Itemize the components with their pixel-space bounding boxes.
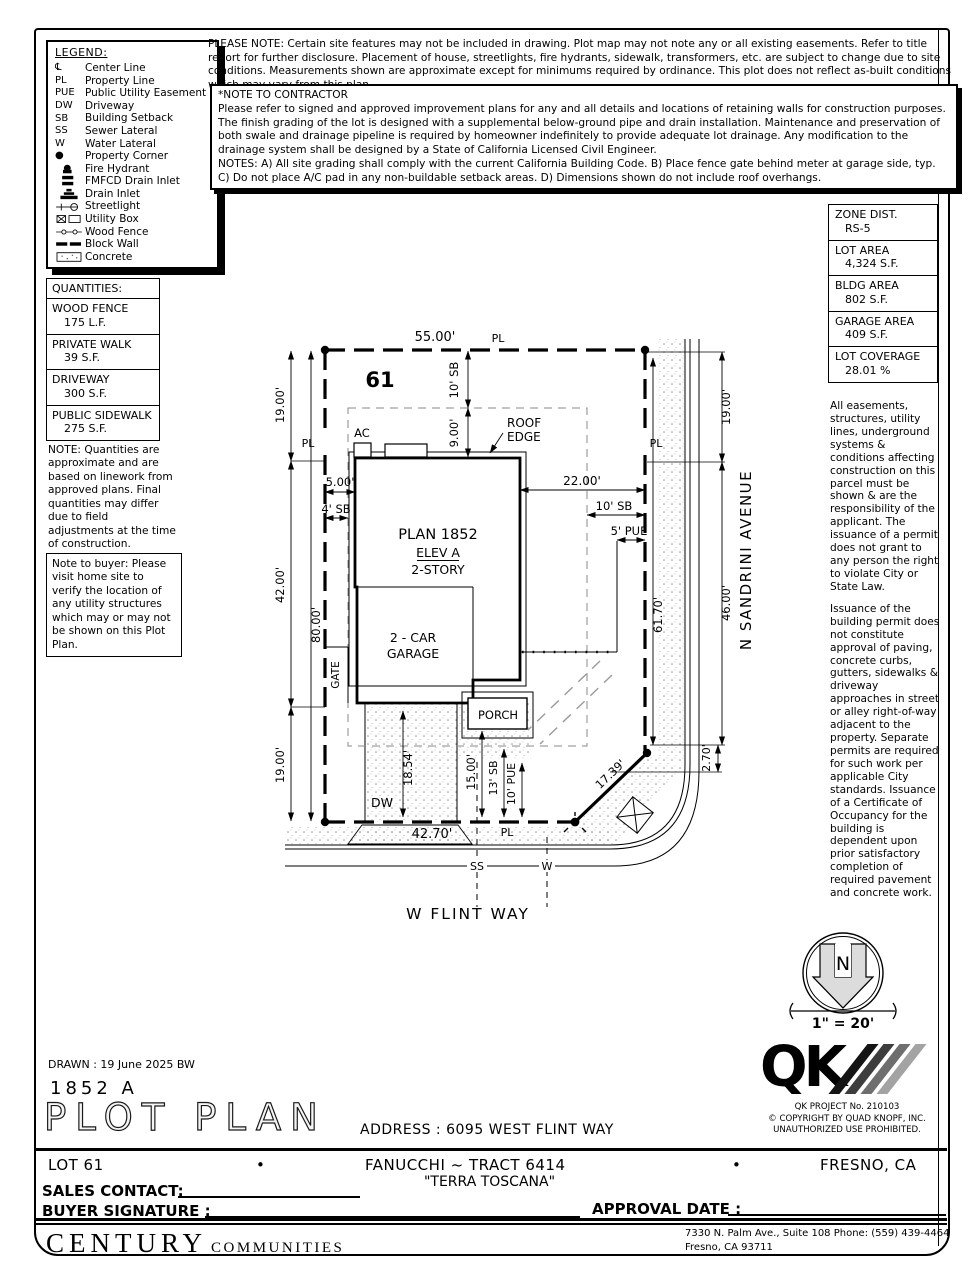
legend-item-fire-hydrant: Fire Hydrant — [55, 163, 213, 176]
bullet: • — [256, 1156, 265, 1174]
buyer-signature-field[interactable] — [205, 1198, 580, 1218]
dim-19-left-bottom: 19.00' — [273, 747, 287, 783]
north-label: N — [836, 953, 850, 975]
water-lateral-label: W — [542, 860, 553, 873]
divider — [35, 1218, 947, 1221]
builder-address: 7330 N. Palm Ave., Suite 108 Phone: (559… — [685, 1227, 949, 1254]
roof-edge-label-1: ROOF — [507, 416, 541, 430]
utility-box-icon — [55, 213, 85, 225]
bullet: • — [732, 1156, 741, 1174]
qk-logo-letters: QK — [760, 1040, 843, 1096]
porch-label: PORCH — [478, 708, 518, 722]
sales-contact-label: SALES CONTACT: — [42, 1182, 184, 1200]
pue-symbol: PUE — [55, 87, 85, 99]
table-row: GARAGE AREA409 S.F. — [829, 312, 937, 348]
legend-item-driveway: DW Driveway — [55, 100, 213, 113]
corner-setback-dash — [540, 675, 612, 744]
table-row: WOOD FENCE175 L.F. — [47, 299, 159, 335]
approval-date-label: APPROVAL DATE : — [592, 1200, 741, 1218]
dw-symbol: DW — [55, 100, 85, 112]
city-label: FRESNO, CA — [820, 1156, 916, 1174]
legend-item-water: W Water Lateral — [55, 137, 213, 150]
elevation-label: ELEV A — [416, 545, 460, 560]
dim-15: 15.00' — [464, 754, 478, 790]
drawn-by: DRAWN : 19 June 2025 BW — [48, 1058, 195, 1071]
pl-label-left: PL — [302, 437, 316, 450]
lot-number: 61 — [365, 368, 394, 392]
quantities-table: QUANTITIES: WOOD FENCE175 L.F. PRIVATE W… — [46, 278, 160, 441]
dim-22: 22.00' — [563, 474, 601, 488]
story-label: 2-STORY — [411, 562, 465, 577]
garage-label-2: GARAGE — [387, 646, 439, 661]
contractor-note-line1: Please refer to signed and approved impr… — [218, 103, 950, 117]
contractor-note-line2: The finish grading of the lot is designe… — [218, 117, 950, 158]
zoning-table: ZONE DIST.RS-5 LOT AREA4,324 S.F. BLDG A… — [828, 204, 938, 383]
quantities-title: QUANTITIES: — [47, 279, 159, 299]
site-plan-drawing: SS W PL PL PL PL — [270, 325, 840, 975]
builder-name: CENTURY — [46, 1228, 207, 1258]
dim-19-right: 19.00' — [719, 389, 733, 425]
legend-item-centerline: ℄ Center Line — [55, 62, 213, 75]
streetlight-icon — [55, 201, 85, 213]
house-outline — [355, 458, 520, 703]
property-corner — [321, 818, 329, 826]
pl-symbol: PL — [55, 75, 85, 87]
drain-inlet-icon — [55, 188, 85, 200]
legend-item-sewer: SS Sewer Lateral — [55, 125, 213, 138]
sb-symbol: SB — [55, 113, 85, 125]
fmfcd-drain-inlet-icon — [55, 175, 85, 187]
easements-paragraph-1: All easements, structures, utility lines… — [830, 400, 942, 594]
lot-label: LOT 61 — [48, 1156, 104, 1174]
ac-pad — [354, 443, 371, 457]
w-symbol: W — [55, 138, 85, 150]
table-row: LOT COVERAGE28.01 % — [829, 347, 937, 382]
sales-contact-field[interactable] — [178, 1178, 360, 1198]
dim-10sb-top: 10' SB — [447, 362, 461, 399]
qk-logo: QK — [752, 1040, 942, 1102]
contractor-note-box: *NOTE TO CONTRACTOR Please refer to sign… — [210, 84, 958, 190]
plot-plan-page: LEGEND: ℄ Center Line PL Property Line P… — [0, 0, 979, 1276]
dim-19-left-top: 19.00' — [273, 387, 287, 423]
qk-logo-block: QK QK PROJECT No. 210103 © COPYRIGHT BY … — [752, 1040, 942, 1137]
plan-label: PLAN 1852 — [398, 527, 477, 543]
easements-note: All easements, structures, utility lines… — [830, 400, 942, 909]
builder-logo: CENTURY COMMUNITIES — [46, 1228, 344, 1259]
property-corner — [643, 749, 651, 757]
legend-item-utility-box: Utility Box — [55, 213, 213, 226]
dim-9: 9.00' — [447, 419, 461, 448]
dim-42-70: 42.70' — [412, 827, 453, 842]
dim-46: 46.00' — [719, 585, 733, 621]
table-row: PRIVATE WALK39 S.F. — [47, 335, 159, 371]
table-row: PUBLIC SIDEWALK275 S.F. — [47, 406, 159, 441]
wood-fence-icon — [55, 226, 85, 238]
corner-setback-dash — [528, 661, 600, 730]
qk-project-number: QK PROJECT No. 210103 — [752, 1102, 942, 1114]
centerline-symbol: ℄ — [55, 62, 85, 74]
pl-label-bottom: PL — [501, 826, 515, 839]
quantities-note: NOTE: Quantities are approximate and are… — [48, 444, 176, 552]
garage-label-1: 2 - CAR — [390, 630, 437, 645]
dim-61-70: 61.70' — [651, 597, 665, 633]
legend-item-block-wall: Block Wall — [55, 238, 213, 251]
dim-5pue: 5' PUE — [611, 524, 648, 538]
table-row: DRIVEWAY300 S.F. — [47, 370, 159, 406]
legend-title: LEGEND: — [55, 47, 213, 60]
legend-item-wood-fence: Wood Fence — [55, 225, 213, 238]
pl-label-top: PL — [492, 332, 506, 345]
ss-symbol: SS — [55, 125, 85, 137]
driveway-label: DW — [371, 795, 393, 810]
legend-item-setback: SB Building Setback — [55, 112, 213, 125]
legend-box: LEGEND: ℄ Center Line PL Property Line P… — [46, 40, 219, 269]
property-corner — [321, 346, 329, 354]
site-address: ADDRESS : 6095 WEST FLINT WAY — [360, 1122, 614, 1138]
dim-4sb: 4' SB — [321, 502, 350, 516]
dim-10sb-right: 10' SB — [596, 499, 633, 513]
legend-item-property-line: PL Property Line — [55, 74, 213, 87]
dim-13sb: 13' SB — [487, 760, 500, 795]
gate-label: GATE — [330, 661, 342, 689]
property-corner — [641, 346, 649, 354]
equipment-pad — [385, 444, 427, 457]
qk-unauthorized: UNAUTHORIZED USE PROHIBITED. — [752, 1125, 942, 1137]
approval-date-field[interactable] — [728, 1196, 946, 1216]
dim-10pue: 10' PUE — [505, 763, 518, 805]
contractor-note-line3: NOTES: A) All site grading shall comply … — [218, 158, 950, 186]
dim-80: 80.00' — [309, 607, 323, 643]
legend-item-streetlight: Streetlight — [55, 200, 213, 213]
roof-edge-label-2: EDGE — [507, 430, 541, 444]
dim-2-70: 2.70' — [700, 744, 713, 772]
ac-label: AC — [354, 426, 370, 440]
dim-18-54: 18.54' — [401, 750, 415, 786]
legend-item-concrete: Concrete — [55, 251, 213, 264]
qk-copyright: © COPYRIGHT BY QUAD KNOPF, INC. — [752, 1114, 942, 1126]
tract-label: FANUCCHI ~ TRACT 6414 — [365, 1156, 566, 1174]
legend-item-drain-inlet: Drain Inlet — [55, 188, 213, 201]
table-row: BLDG AREA802 S.F. — [829, 276, 937, 312]
dim-42: 42.00' — [273, 567, 287, 603]
scale-label: 1" = 20' — [793, 1016, 893, 1032]
dim-55: 55.00' — [415, 330, 456, 345]
easements-paragraph-2: Issuance of the building permit does not… — [830, 603, 942, 900]
sheet-title: PLOT PLAN — [44, 1096, 327, 1139]
divider — [35, 1223, 947, 1225]
legend-item-fmfcd-inlet: FMFCD Drain Inlet — [55, 175, 213, 188]
block-wall-icon — [55, 238, 85, 250]
table-row: LOT AREA4,324 S.F. — [829, 241, 937, 277]
divider — [35, 1148, 947, 1151]
builder-subname: COMMUNITIES — [211, 1240, 344, 1256]
legend-item-pue: PUE Public Utility Easement — [55, 87, 213, 100]
dim-5: 5.00' — [326, 475, 355, 489]
property-corner-icon: ● — [55, 150, 85, 162]
legend-item-property-corner: ● Property Corner — [55, 150, 213, 163]
pl-label-right: PL — [650, 437, 664, 450]
table-row: ZONE DIST.RS-5 — [829, 205, 937, 241]
sewer-lateral-label: SS — [470, 860, 484, 873]
buyer-note-box: Note to buyer: Please visit home site to… — [46, 553, 182, 657]
contractor-note-title: *NOTE TO CONTRACTOR — [218, 89, 950, 103]
fire-hydrant-icon — [55, 163, 85, 175]
street-name-bottom: W FLINT WAY — [406, 905, 530, 923]
street-name-right: N SANDRINI AVENUE — [737, 470, 755, 650]
concrete-icon — [55, 251, 85, 263]
